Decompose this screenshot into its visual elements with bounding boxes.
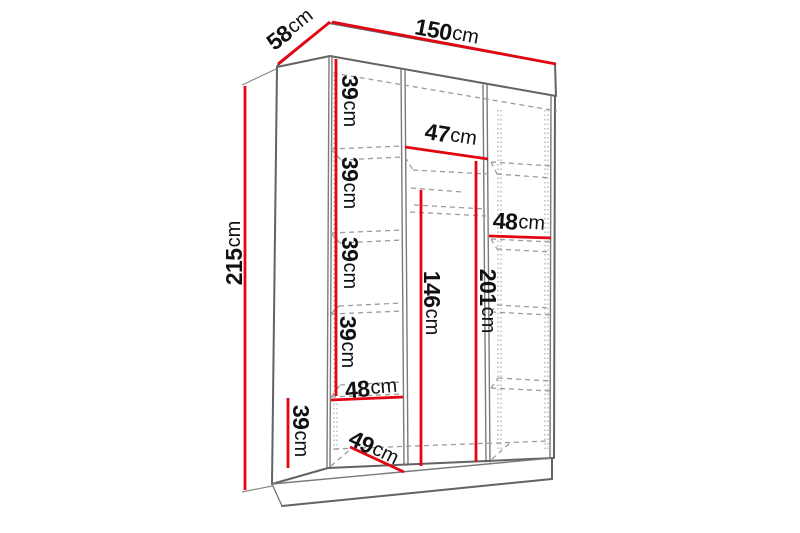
- partition-1-left: [401, 70, 404, 465]
- dimension-right-shelf-width-48: 48cm: [489, 207, 551, 238]
- dimension-width-150: 150cm: [332, 13, 556, 64]
- dimension-left-shelf-width-48: 48cm: [331, 373, 403, 403]
- dimension-label-width-150: 150cm: [413, 13, 481, 50]
- wardrobe-diagram: 58cm150cm215cm39cm39cm39cm39cm48cm39cm49…: [0, 0, 800, 533]
- dimension-label-height-215: 215cm: [221, 221, 247, 286]
- right-panel-outer-edge: [554, 96, 555, 458]
- dimension-label-hanging-height-146: 146cm: [419, 271, 445, 336]
- dimension-label-left-shelf-39-1: 39cm: [337, 75, 363, 127]
- dimension-line-right-shelf-width-48: [489, 236, 551, 238]
- dimension-left-shelf-39-1: 39cm: [336, 59, 363, 148]
- dimension-depth-58: 58cm: [261, 3, 330, 64]
- left-panel-front-edge: [272, 67, 277, 484]
- right-shelf-1: [491, 162, 551, 178]
- right-shelf-4: [491, 378, 551, 391]
- dimension-height-215: 215cm: [221, 86, 247, 490]
- pin-holes-right-wall: [545, 110, 548, 450]
- interior-left-edge: [327, 57, 329, 467]
- dimension-label-left-bottom-39: 39cm: [288, 405, 314, 457]
- dimension-label-left-shelf-39-4: 39cm: [335, 316, 361, 368]
- height-tick-bottom: [242, 486, 272, 492]
- right-panel-inner-edge: [550, 96, 551, 457]
- dimension-label-left-shelf-39-3: 39cm: [337, 237, 363, 289]
- interior-left-edge-inner: [330, 57, 332, 467]
- left-shelf-3: [331, 303, 403, 314]
- floor-front-edge: [328, 458, 553, 468]
- dimension-label-middle-shelf-width-47: 47cm: [423, 118, 479, 152]
- dimension-left-shelf-39-3: 39cm: [336, 232, 363, 313]
- dimension-hanging-height-146: 146cm: [419, 190, 445, 466]
- dimension-left-bottom-39: 39cm: [288, 398, 314, 468]
- dimension-label-left-shelf-39-2: 39cm: [337, 157, 363, 209]
- plinth-bottom-edge: [282, 479, 552, 506]
- height-tick-top: [242, 69, 276, 85]
- partition-1-right: [405, 70, 408, 465]
- dimension-left-shelf-39-2: 39cm: [336, 148, 363, 232]
- top-panel-right-edge: [555, 64, 556, 96]
- top-panel-front-edge: [277, 56, 556, 96]
- extension-ticks: [242, 69, 276, 492]
- dimension-label-floor-depth-49: 49cm: [345, 425, 403, 471]
- dimension-annotations: 58cm150cm215cm39cm39cm39cm39cm48cm39cm49…: [221, 3, 556, 490]
- dimension-label-depth-58: 58cm: [261, 3, 318, 56]
- wardrobe-dimension-diagram-page: 58cm150cm215cm39cm39cm39cm39cm48cm39cm49…: [0, 0, 800, 533]
- dimension-line-middle-shelf-width-47: [405, 147, 488, 159]
- back-top-edge: [333, 73, 557, 111]
- dimension-label-right-shelf-width-48: 48cm: [492, 207, 546, 237]
- dimension-middle-shelf-width-47: 47cm: [405, 118, 488, 159]
- right-shelf-2: [491, 239, 551, 252]
- right-shelf-3: [491, 305, 551, 315]
- dimension-label-right-height-201: 201cm: [475, 269, 501, 334]
- plinth-left-edge: [272, 484, 282, 506]
